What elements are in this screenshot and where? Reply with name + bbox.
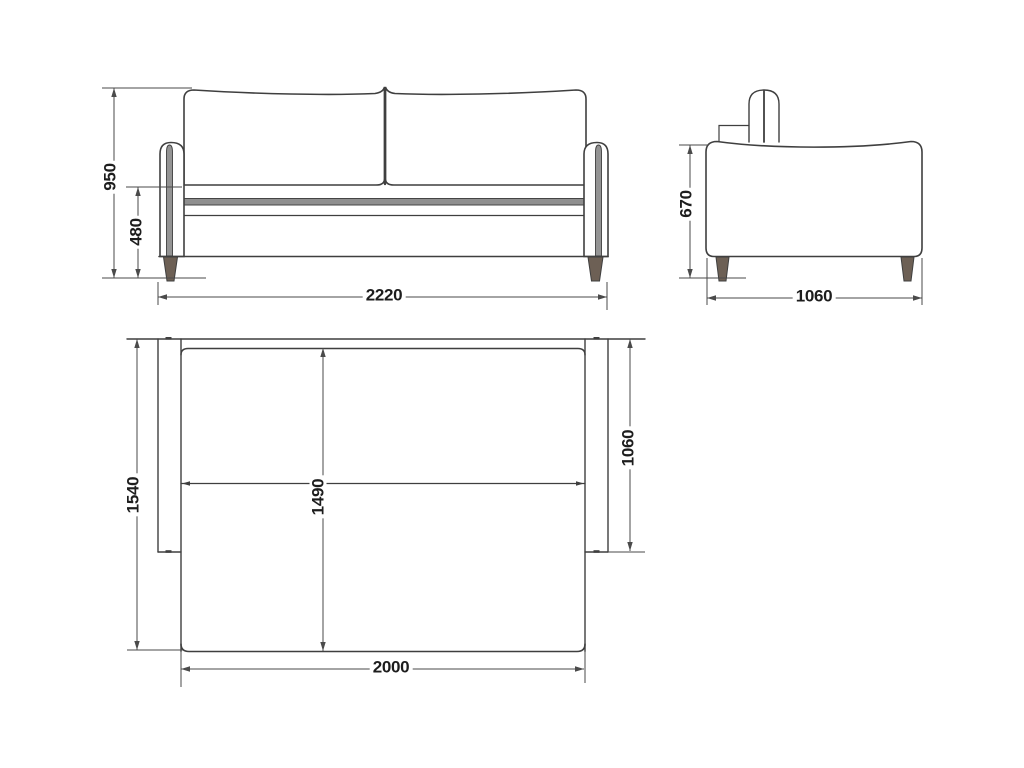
arrowhead xyxy=(913,295,922,300)
side-back-leg xyxy=(901,257,914,281)
front-view xyxy=(159,87,608,281)
arrowhead xyxy=(687,269,692,278)
drawing-canvas xyxy=(0,0,1024,768)
arrowhead xyxy=(627,542,632,551)
right-armrest-seam xyxy=(596,145,602,256)
arrowhead xyxy=(111,88,116,97)
fabric-tick xyxy=(594,550,600,553)
bed-head-edge xyxy=(181,349,585,356)
arrowhead xyxy=(707,295,716,300)
left-armrest-seam xyxy=(167,145,173,256)
side-back-frame xyxy=(719,126,749,143)
fabric-tick xyxy=(166,550,172,553)
top-view xyxy=(127,337,645,652)
arrowhead xyxy=(687,145,692,154)
arrowhead xyxy=(158,294,167,299)
side-view xyxy=(706,90,922,281)
arrowhead xyxy=(135,269,140,278)
fold-notch xyxy=(182,481,190,486)
arrowhead xyxy=(627,339,632,348)
dim-label-side-overall-depth: 1060 xyxy=(793,288,836,305)
arrowhead xyxy=(598,294,607,299)
arrowhead xyxy=(181,666,190,671)
dim-label-top-overall-depth: 1540 xyxy=(125,474,142,517)
arrowhead xyxy=(111,269,116,278)
seat-shadow-band xyxy=(184,199,584,206)
dim-label-front-seat-height: 480 xyxy=(128,215,145,248)
dim-label-side-arm-height: 670 xyxy=(678,187,695,220)
front-left-leg xyxy=(164,257,178,281)
arrowhead xyxy=(134,339,139,348)
front-right-leg xyxy=(588,257,603,281)
arrowhead xyxy=(135,187,140,196)
fold-notch xyxy=(576,481,584,486)
back-cushion-right xyxy=(386,87,587,185)
arrowhead xyxy=(575,666,584,671)
arrowhead xyxy=(320,348,325,357)
sofa-dimension-drawing: 950 480 2220 670 1060 1540 1490 1060 200… xyxy=(0,0,1024,768)
fabric-tick xyxy=(166,337,172,340)
dim-label-top-bed-length: 1490 xyxy=(310,476,327,519)
dim-label-top-bed-width: 2000 xyxy=(370,659,413,676)
arrowhead xyxy=(134,641,139,650)
top-view-dimensions xyxy=(127,339,645,687)
back-cushion-left xyxy=(184,87,385,185)
side-front-leg xyxy=(716,257,729,281)
dim-label-top-seat-depth: 1060 xyxy=(620,427,637,470)
dim-label-front-overall-width: 2220 xyxy=(363,287,406,304)
bed-front-edge xyxy=(181,644,585,652)
arrowhead xyxy=(320,642,325,651)
dim-label-front-overall-height: 950 xyxy=(102,160,119,193)
fabric-tick xyxy=(594,337,600,340)
side-body xyxy=(706,142,922,257)
